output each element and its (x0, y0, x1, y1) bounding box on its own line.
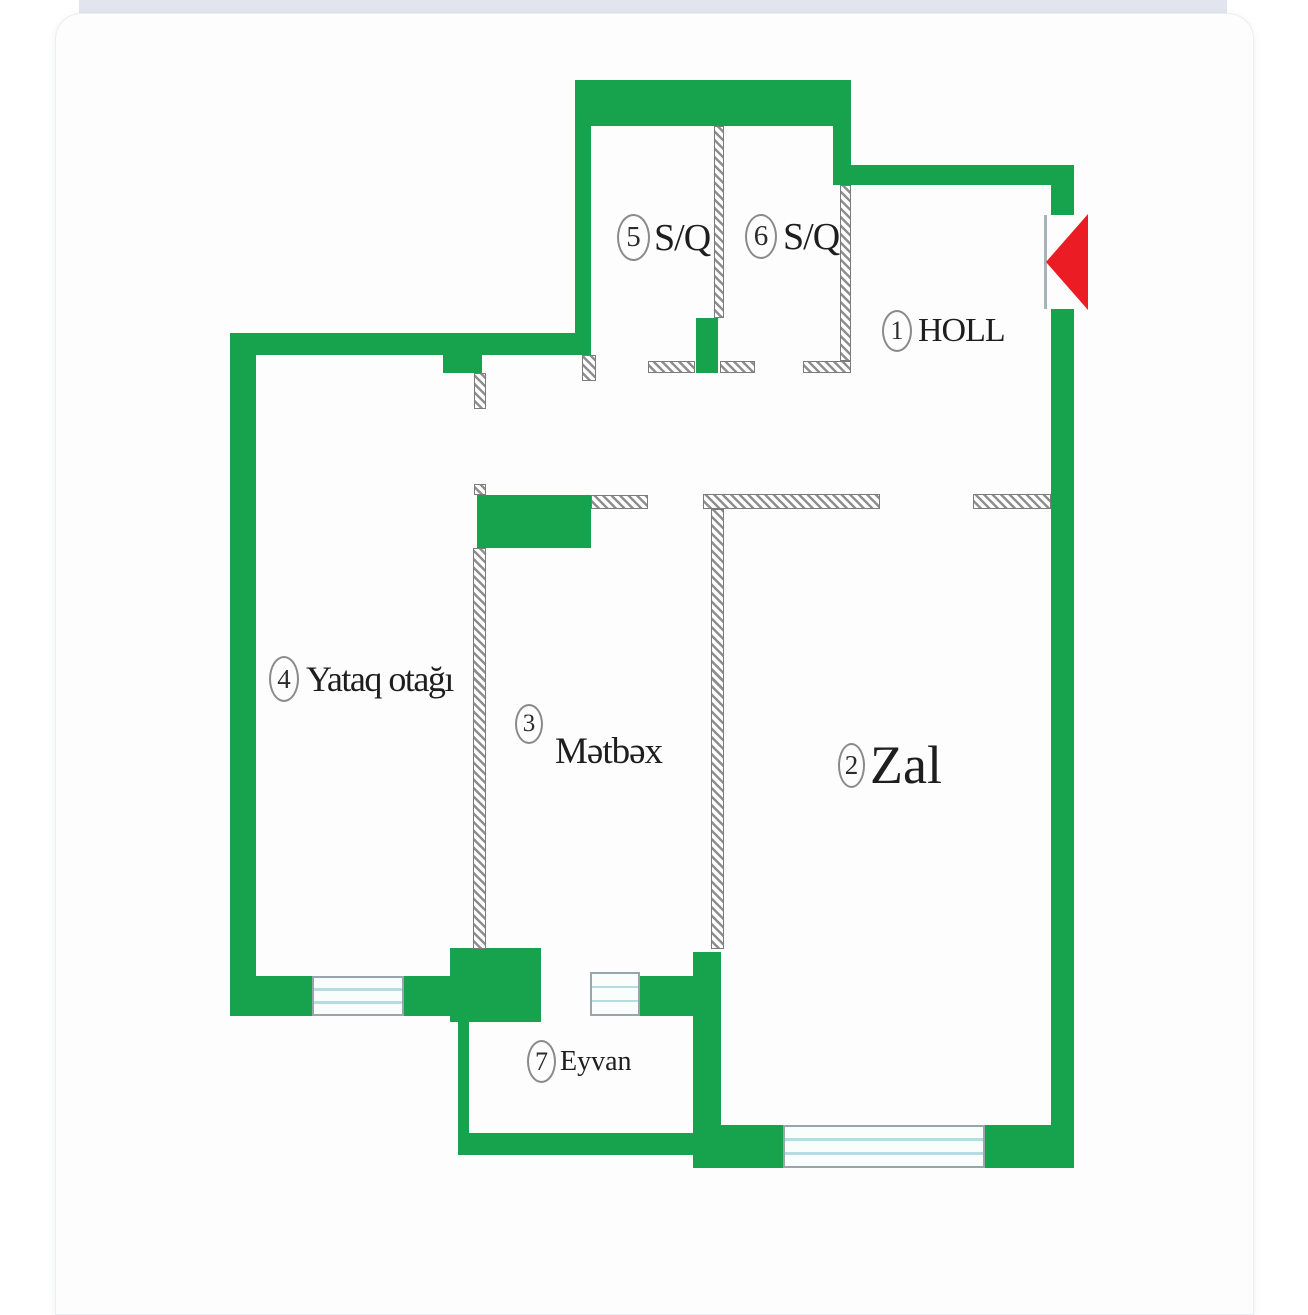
room-number-badge: 7 (527, 1040, 556, 1083)
room-label-sq-6: 6 S/Q (745, 214, 839, 259)
room-name: Eyvan (560, 1046, 632, 1078)
floor-plan: 1 HOLL 2 Zal 3 Mətbəx 4 Yataq otağı 5 S/… (0, 0, 1308, 1200)
room-name: Mətbəx (555, 730, 662, 773)
room-label-holl: 1 HOLL (882, 310, 1005, 352)
partition-metbex-top (591, 495, 648, 509)
wall-right-outer (1051, 309, 1074, 1168)
window-bedroom (312, 976, 404, 1016)
wall-holl-top (833, 165, 1074, 185)
room-number-badge: 6 (745, 214, 777, 259)
wall-metbex-bottom (640, 976, 693, 1016)
wall-zal-bottom-left (693, 1125, 783, 1168)
wall-left-outer (230, 333, 256, 1016)
room-number-badge: 4 (269, 656, 299, 702)
wall-zal-bottom-right (985, 1125, 1074, 1168)
room-name: Zal (870, 734, 942, 796)
wall-sq-top (575, 80, 851, 126)
partition-zal-metbex-divider (711, 509, 724, 949)
partition-bedroom-door-nub (474, 484, 486, 495)
room-number-badge: 3 (515, 704, 543, 744)
room-label-eyvan: 7 Eyvan (527, 1040, 632, 1083)
room-number-badge: 2 (838, 743, 865, 788)
wall-bedroom-door-stub (443, 355, 482, 373)
room-number-badge: 1 (882, 310, 912, 352)
wall-bedroom-bottom-left (230, 976, 312, 1016)
room-name: Yataq otağı (306, 658, 453, 700)
wall-sq-mid-stub (696, 318, 718, 373)
window-metbex (590, 972, 640, 1016)
partition-bedroom-door-top (474, 373, 486, 409)
room-label-yataq-otagi: 4 Yataq otağı (269, 656, 453, 702)
room-name: HOLL (918, 312, 1005, 350)
partition-bedroom-metbex-divider (473, 548, 486, 949)
wall-right-above-entrance (1051, 185, 1074, 215)
partition-sq-divider (714, 126, 724, 318)
wall-bedroom-top (230, 333, 578, 355)
window-zal (783, 1125, 985, 1168)
partition-zal-top (703, 494, 880, 509)
partition-sq6-bottom-left (720, 361, 755, 373)
wall-metbex-top-block (477, 495, 591, 548)
room-label-metbex: 3 Mətbəx (515, 704, 662, 773)
room-number-badge: 5 (617, 214, 650, 261)
partition-sq5-left-nub (582, 355, 596, 381)
entrance-arrow-icon (1046, 214, 1088, 310)
partition-holl-bottom-right (973, 494, 1051, 509)
room-name: S/Q (654, 216, 710, 260)
room-label-sq-5: 5 S/Q (617, 214, 710, 261)
room-name: S/Q (783, 215, 839, 259)
wall-eyvan-bottom (458, 1133, 697, 1155)
wall-junction-block (450, 948, 541, 1022)
partition-sq5-bottom (648, 361, 695, 373)
room-label-zal: 2 Zal (838, 734, 942, 796)
wall-sq-left (575, 80, 591, 355)
partition-sq6-bottom-right (803, 361, 851, 373)
partition-holl-left (840, 185, 851, 361)
